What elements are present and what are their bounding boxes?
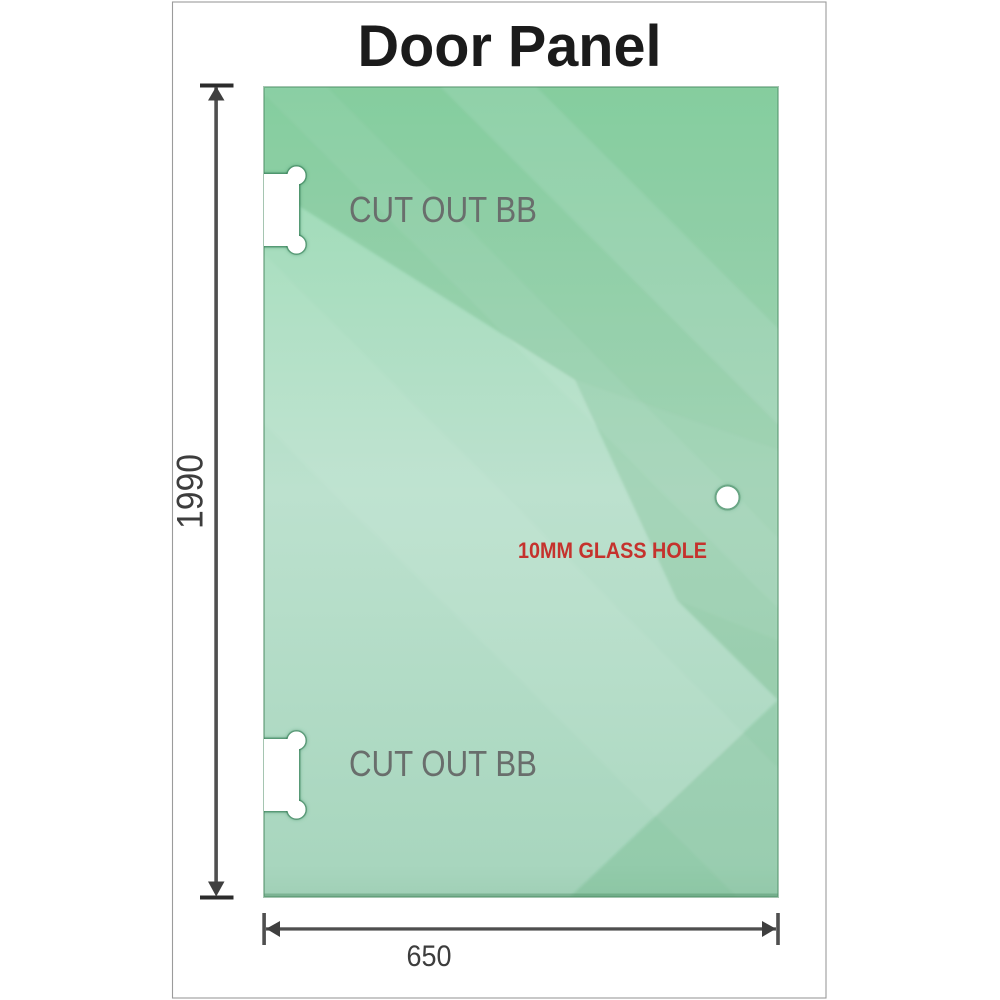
svg-text:650: 650 <box>407 940 452 973</box>
svg-text:10MM GLASS HOLE: 10MM GLASS HOLE <box>518 538 707 563</box>
svg-text:CUT OUT BB: CUT OUT BB <box>349 743 537 784</box>
svg-text:CUT OUT BB: CUT OUT BB <box>349 189 537 230</box>
svg-text:Door Panel: Door Panel <box>358 14 662 79</box>
svg-text:1990: 1990 <box>169 454 211 529</box>
